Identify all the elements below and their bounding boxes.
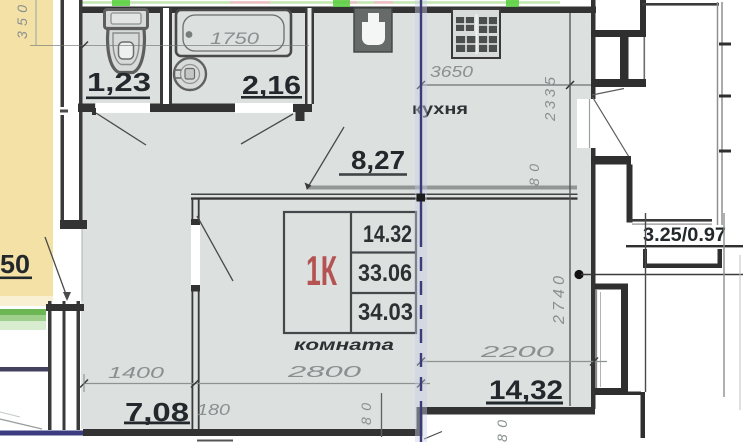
svg-text:350: 350 bbox=[14, 5, 30, 39]
svg-text:3650: 3650 bbox=[430, 64, 473, 81]
svg-text:2200: 2200 bbox=[479, 344, 554, 361]
svg-text:50: 50 bbox=[0, 249, 30, 279]
svg-text:2,16: 2,16 bbox=[242, 70, 301, 100]
svg-text:14.32: 14.32 bbox=[363, 221, 412, 248]
svg-text:33.06: 33.06 bbox=[358, 260, 412, 287]
svg-text:1400: 1400 bbox=[108, 365, 164, 382]
svg-text:8,27: 8,27 bbox=[351, 145, 405, 175]
svg-text:1К: 1К bbox=[306, 247, 337, 294]
svg-text:1,23: 1,23 bbox=[87, 67, 151, 97]
svg-text:2800: 2800 bbox=[286, 364, 361, 381]
svg-text:комната: комната bbox=[294, 337, 394, 354]
svg-text:3.25/0.97: 3.25/0.97 bbox=[643, 225, 726, 246]
svg-text:34.03: 34.03 bbox=[358, 299, 413, 326]
svg-text:180: 180 bbox=[197, 402, 230, 419]
svg-text:14,32: 14,32 bbox=[489, 375, 563, 405]
